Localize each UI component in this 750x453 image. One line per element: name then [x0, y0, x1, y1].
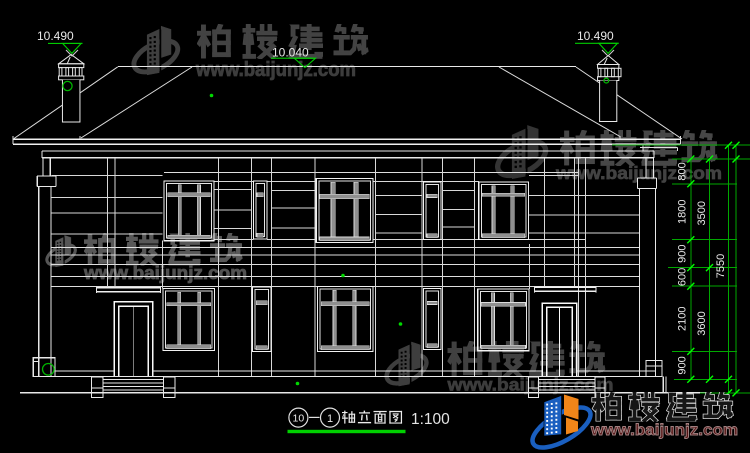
- svg-text:1:100: 1:100: [411, 411, 450, 428]
- svg-text:3600: 3600: [696, 311, 708, 335]
- svg-text:900: 900: [677, 245, 689, 263]
- svg-text:www.baijunjz.com: www.baijunjz.com: [555, 163, 722, 183]
- svg-text:7550: 7550: [715, 254, 727, 278]
- svg-text:800: 800: [677, 162, 689, 180]
- svg-text:3500: 3500: [696, 201, 708, 225]
- svg-text:600: 600: [677, 268, 689, 286]
- svg-text:1800: 1800: [677, 200, 689, 224]
- svg-text:10.040: 10.040: [272, 46, 309, 60]
- svg-text:10.490: 10.490: [577, 29, 614, 43]
- svg-text:2100: 2100: [677, 307, 689, 331]
- svg-text:900: 900: [677, 356, 689, 374]
- svg-text:10: 10: [293, 413, 305, 425]
- svg-text:10.490: 10.490: [37, 29, 74, 43]
- svg-text:1: 1: [327, 413, 333, 425]
- svg-text:www.baijunjz.com: www.baijunjz.com: [590, 422, 738, 439]
- svg-text:www.baijunjz.com: www.baijunjz.com: [195, 59, 356, 81]
